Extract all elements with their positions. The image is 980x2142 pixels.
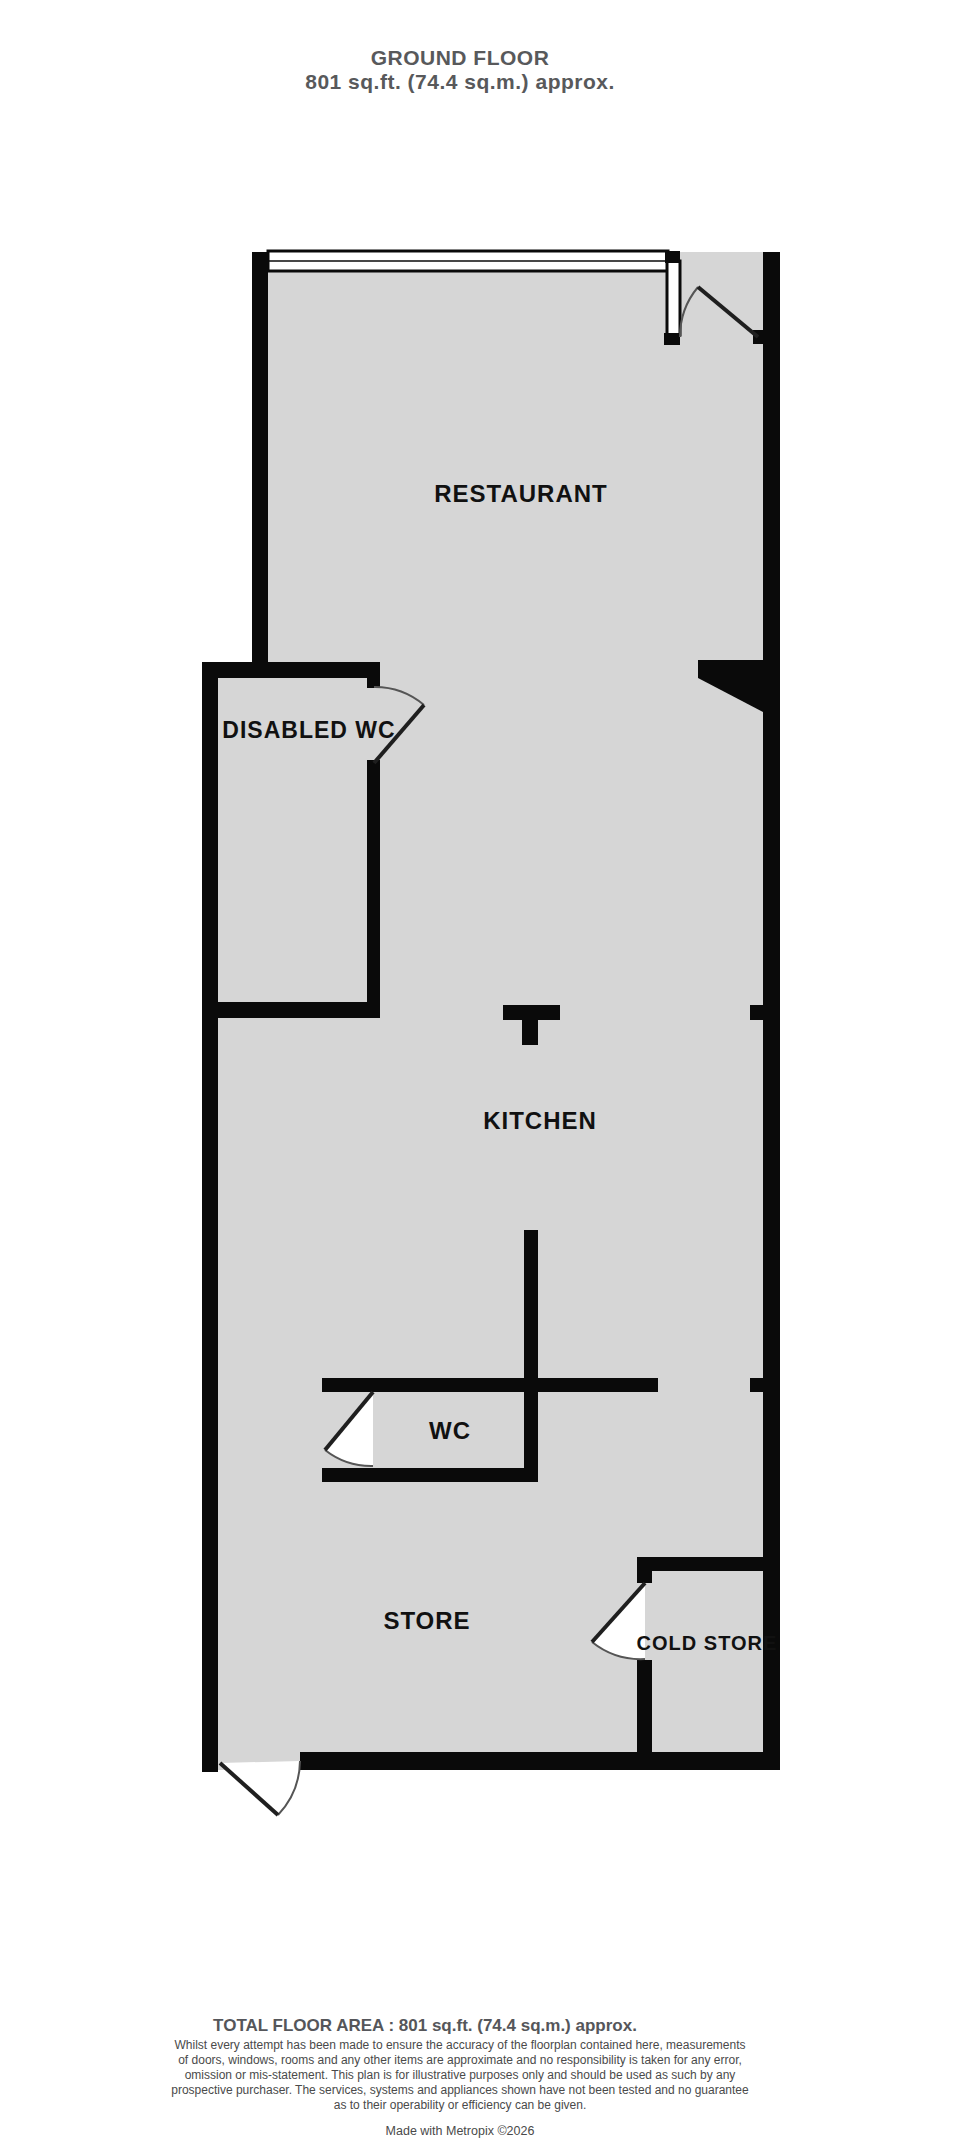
wall-stub-right-store	[750, 1378, 763, 1392]
wall-right	[763, 252, 780, 1770]
window-return-cap-bottom	[664, 333, 680, 345]
door-area-rear	[220, 1761, 300, 1815]
total-floor-area: TOTAL FLOOR AREA : 801 sq.ft. (74.4 sq.m…	[0, 2016, 850, 2036]
disclaimer-line: of doors, windows, rooms and any other i…	[0, 2053, 920, 2068]
disclaimer-line: prospective purchaser. The services, sys…	[0, 2083, 920, 2098]
disclaimer-block: Whilst every attempt has been made to en…	[0, 2038, 920, 2113]
label-cold-store: COLD STORE	[637, 1632, 778, 1654]
wall-wc-right	[524, 1230, 538, 1482]
metropix-credit: Made with Metropix ©2026	[0, 2124, 920, 2138]
disclaimer-line: omission or mis-statement. This plan is …	[0, 2068, 920, 2083]
wall-disabledwc-bottom	[202, 1002, 380, 1018]
wall-stub-right-kitchen	[750, 1005, 763, 1020]
wall-coldstore-top	[652, 1557, 763, 1571]
wall-disabledwc-right	[367, 760, 380, 1002]
window-return	[667, 261, 680, 335]
wall-wc-top	[322, 1378, 658, 1392]
floorplan-drawing: RESTAURANT DISABLED WC KITCHEN WC STORE …	[0, 0, 980, 2142]
disclaimer-line: Whilst every attempt has been made to en…	[0, 2038, 920, 2053]
wall-t-bar	[503, 1005, 560, 1020]
wall-coldstore-post	[637, 1557, 652, 1583]
wall-left-upper	[252, 252, 268, 678]
label-disabled-wc: DISABLED WC	[222, 717, 395, 743]
label-kitchen: KITCHEN	[483, 1107, 597, 1134]
wall-coldstore-left	[637, 1660, 652, 1755]
label-store: STORE	[383, 1607, 470, 1634]
window-return-cap-top	[665, 251, 680, 263]
disclaimer-line: as to their operability or efficiency ca…	[0, 2098, 920, 2113]
label-wc: WC	[429, 1417, 471, 1444]
wall-bottom	[300, 1752, 780, 1770]
wall-left-lower	[202, 662, 218, 1772]
floorplan-page: GROUND FLOOR 801 sq.ft. (74.4 sq.m.) app…	[0, 0, 980, 2142]
wall-disabledwc-top	[202, 662, 380, 678]
wall-wc-bottom	[322, 1468, 537, 1482]
wall-t-stem	[522, 1020, 538, 1045]
label-restaurant: RESTAURANT	[434, 480, 608, 507]
